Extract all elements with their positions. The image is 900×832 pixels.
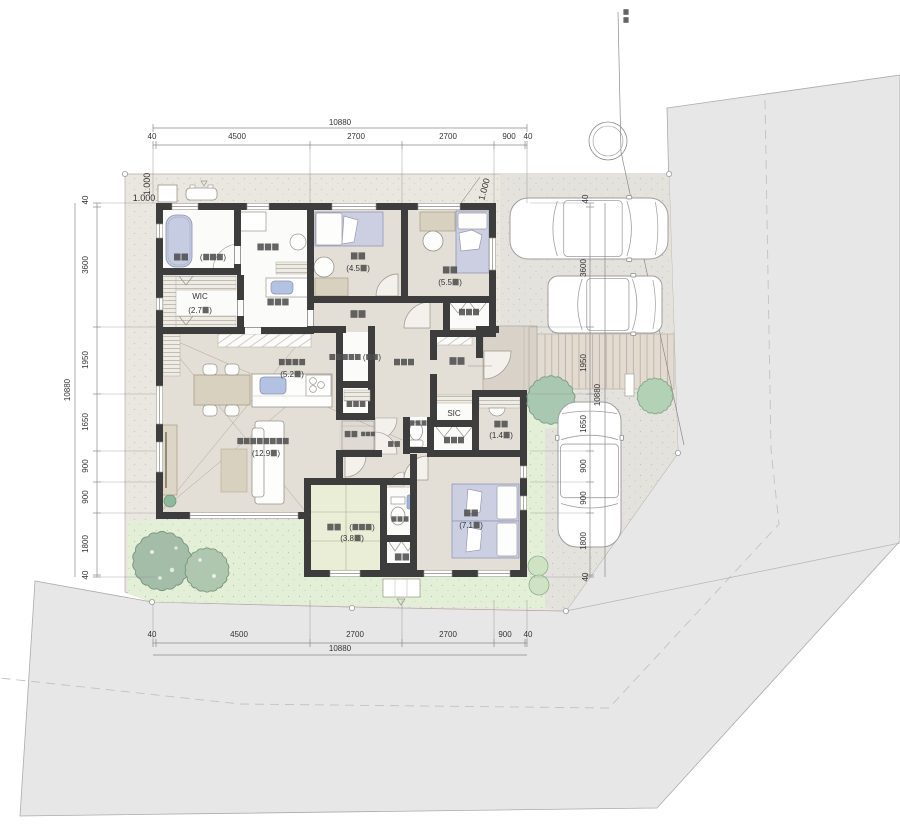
- svg-text:900: 900: [502, 132, 516, 141]
- svg-text:): ): [361, 534, 364, 543]
- svg-text:40: 40: [148, 630, 157, 639]
- svg-text:1950: 1950: [81, 351, 90, 369]
- svg-text:(5.2: (5.2: [280, 370, 294, 379]
- svg-text:SIC: SIC: [447, 409, 461, 418]
- svg-text:(2.7: (2.7: [188, 306, 202, 315]
- svg-text:900: 900: [81, 459, 90, 473]
- svg-text:900: 900: [498, 630, 512, 639]
- svg-text:40: 40: [581, 194, 590, 203]
- svg-text:1950: 1950: [579, 354, 588, 372]
- svg-text:10880: 10880: [593, 383, 602, 406]
- svg-text:1800: 1800: [81, 535, 90, 553]
- svg-text:1800: 1800: [579, 532, 588, 550]
- svg-text:): ): [223, 253, 226, 262]
- svg-text:900: 900: [579, 491, 588, 505]
- svg-text:40: 40: [81, 570, 90, 579]
- svg-text:2700: 2700: [439, 630, 457, 639]
- svg-text:40: 40: [581, 572, 590, 581]
- svg-text:): ): [459, 278, 462, 287]
- svg-text:(: (: [363, 353, 366, 362]
- svg-text:): ): [372, 523, 375, 532]
- svg-text:900: 900: [81, 490, 90, 504]
- svg-text:(3.8: (3.8: [340, 534, 354, 543]
- svg-text:(4.5: (4.5: [346, 264, 360, 273]
- svg-text:900: 900: [579, 459, 588, 473]
- svg-text:1650: 1650: [579, 415, 588, 433]
- svg-text:(12.9: (12.9: [252, 449, 271, 458]
- svg-text:WIC: WIC: [192, 292, 208, 301]
- svg-text:(7.1: (7.1: [459, 521, 473, 530]
- svg-text:40: 40: [81, 195, 90, 204]
- svg-text:): ): [378, 353, 381, 362]
- svg-text:): ): [367, 264, 370, 273]
- svg-text:1.000: 1.000: [142, 173, 152, 196]
- svg-text:(: (: [200, 253, 203, 262]
- svg-text:2700: 2700: [439, 132, 457, 141]
- svg-text:2700: 2700: [346, 630, 364, 639]
- svg-text:): ): [301, 370, 304, 379]
- svg-text:40: 40: [524, 132, 533, 141]
- svg-text:(5.5: (5.5: [438, 278, 452, 287]
- svg-text:10880: 10880: [329, 644, 352, 653]
- svg-text:): ): [277, 449, 280, 458]
- svg-text:4500: 4500: [228, 132, 246, 141]
- svg-text:(1.4: (1.4: [489, 431, 503, 440]
- svg-text:10880: 10880: [63, 378, 72, 401]
- svg-text:10880: 10880: [329, 118, 352, 127]
- svg-text:): ): [209, 306, 212, 315]
- svg-text:3600: 3600: [579, 259, 588, 277]
- svg-text:1650: 1650: [81, 413, 90, 431]
- svg-text:4500: 4500: [230, 630, 248, 639]
- svg-text:3600: 3600: [81, 256, 90, 274]
- svg-text:40: 40: [148, 132, 157, 141]
- svg-text:): ): [510, 431, 513, 440]
- svg-text:2700: 2700: [347, 132, 365, 141]
- svg-text:40: 40: [524, 630, 533, 639]
- svg-text:): ): [480, 521, 483, 530]
- svg-text:(: (: [349, 523, 352, 532]
